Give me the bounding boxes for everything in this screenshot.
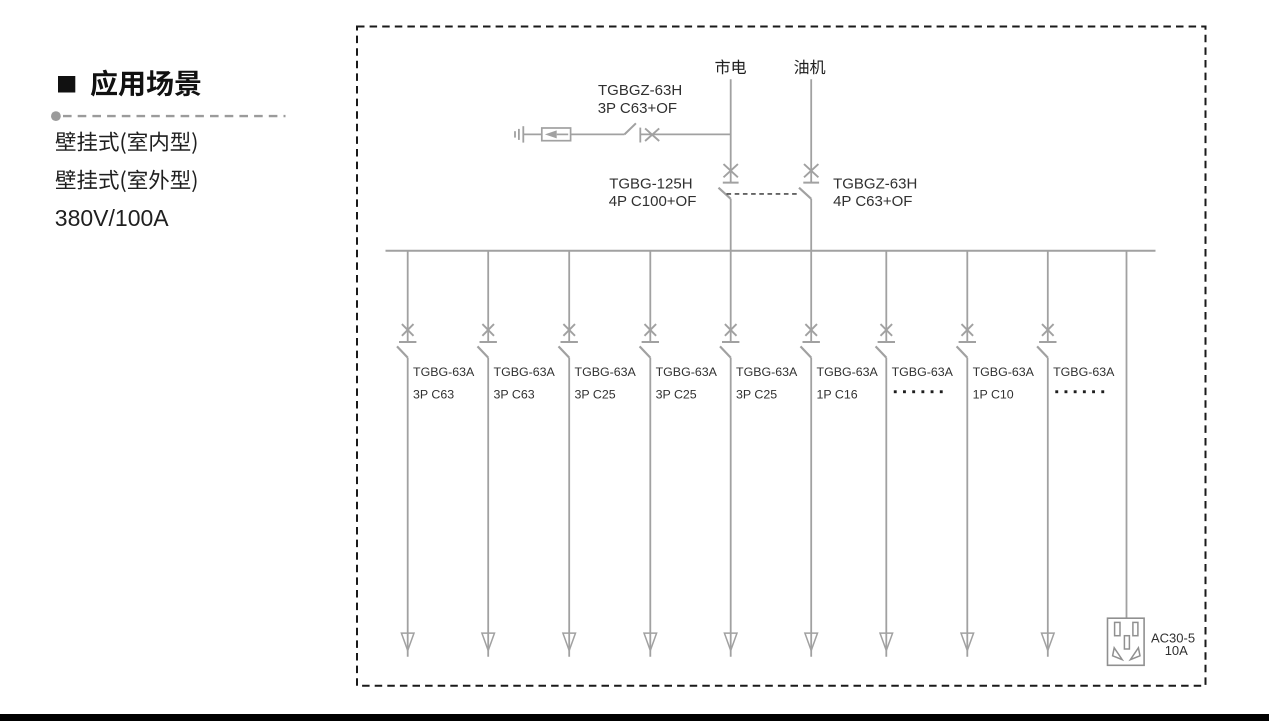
svg-text:TGBG-63A: TGBG-63A	[494, 365, 556, 379]
svg-text:10A: 10A	[1165, 643, 1188, 658]
svg-text:380V/100A: 380V/100A	[55, 205, 169, 231]
svg-text:3P C63+OF: 3P C63+OF	[598, 100, 677, 117]
svg-text:3P C63: 3P C63	[413, 387, 454, 401]
svg-text:TGBGZ-63H: TGBGZ-63H	[833, 175, 917, 192]
svg-text:TGBG-63A: TGBG-63A	[656, 365, 718, 379]
svg-text:TGBGZ-63H: TGBGZ-63H	[598, 82, 682, 99]
svg-text:TGBG-125H: TGBG-125H	[609, 175, 692, 192]
svg-text:3P C25: 3P C25	[575, 387, 616, 401]
svg-text:TGBG-63A: TGBG-63A	[817, 365, 879, 379]
svg-text:3P C63: 3P C63	[494, 387, 535, 401]
svg-text:TGBG-63A: TGBG-63A	[1053, 365, 1115, 379]
svg-text:1P C10: 1P C10	[973, 387, 1014, 401]
svg-text:1P C16: 1P C16	[817, 387, 858, 401]
svg-text:3P C25: 3P C25	[736, 387, 777, 401]
svg-text:3P C25: 3P C25	[656, 387, 697, 401]
svg-text:4P C63+OF: 4P C63+OF	[833, 193, 912, 210]
svg-text:TGBG-63A: TGBG-63A	[413, 365, 475, 379]
svg-text:4P C100+OF: 4P C100+OF	[609, 193, 697, 210]
svg-text:TGBG-63A: TGBG-63A	[736, 365, 798, 379]
svg-text:TGBG-63A: TGBG-63A	[973, 365, 1035, 379]
svg-text:TGBG-63A: TGBG-63A	[892, 365, 954, 379]
svg-text:TGBG-63A: TGBG-63A	[575, 365, 637, 379]
